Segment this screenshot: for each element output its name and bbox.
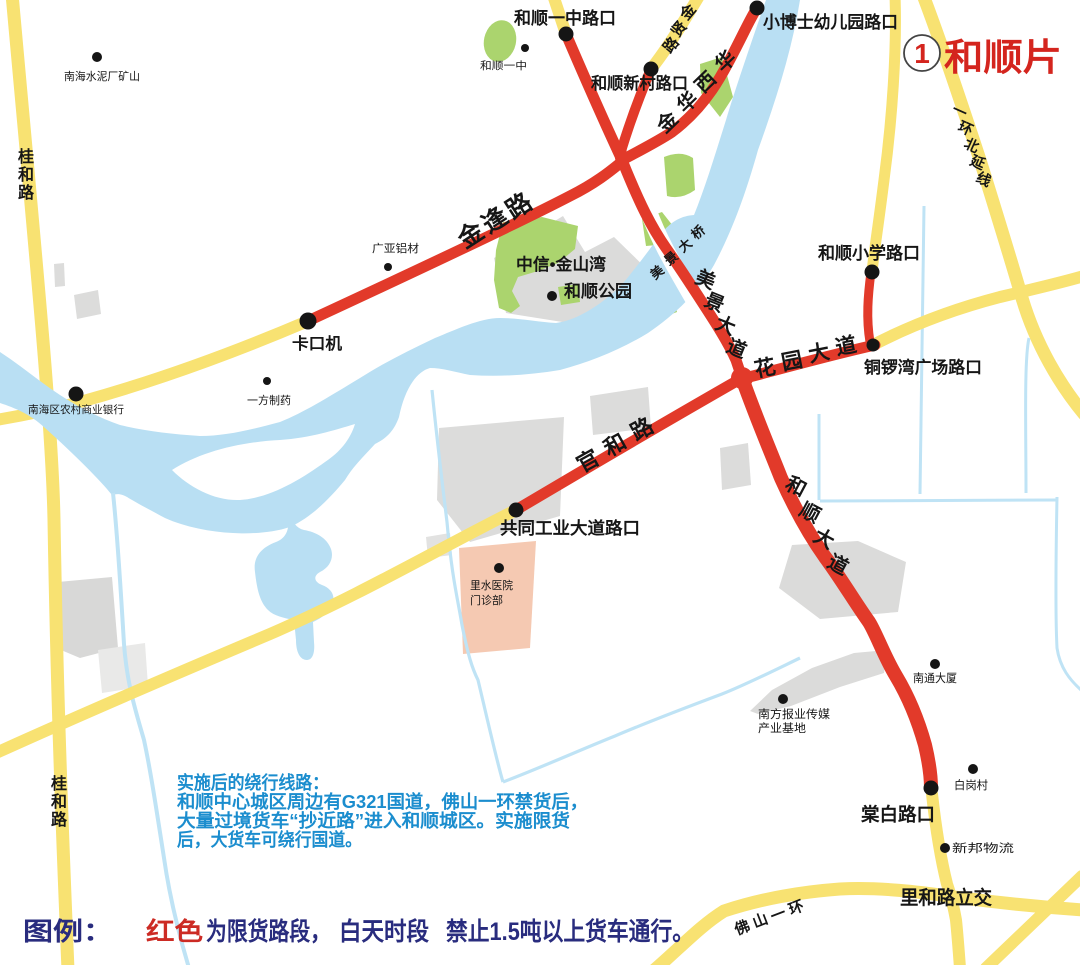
svg-text:小博士幼儿园路口: 小博士幼儿园路口	[763, 12, 898, 32]
svg-text:和顺中心城区周边有G321国道，佛山一环禁货后，: 和顺中心城区周边有G321国道，佛山一环禁货后，	[177, 791, 588, 812]
svg-text:花: 花	[752, 354, 777, 382]
svg-text:铜锣湾广场路口: 铜锣湾广场路口	[864, 357, 982, 377]
svg-text:后，大货车可绕行国道。: 后，大货车可绕行国道。	[177, 829, 362, 850]
svg-text:大: 大	[807, 340, 832, 367]
svg-text:和顺一中路口: 和顺一中路口	[514, 8, 616, 28]
svg-text:桂: 桂	[17, 147, 34, 166]
svg-text:南海水泥厂矿山: 南海水泥厂矿山	[64, 69, 140, 83]
svg-text:产业基地: 产业基地	[758, 721, 807, 735]
svg-text:广亚铝材: 广亚铝材	[372, 241, 419, 255]
svg-text:和顺一中: 和顺一中	[480, 59, 527, 72]
svg-text:共同工业大道路口: 共同工业大道路口	[500, 518, 640, 538]
svg-text:白天时段: 白天时段	[339, 917, 429, 946]
svg-text:园: 园	[780, 348, 805, 375]
svg-text:和顺小学路口: 和顺小学路口	[818, 243, 920, 263]
svg-text:道: 道	[833, 332, 858, 360]
svg-text:棠白路口: 棠白路口	[860, 804, 935, 825]
svg-text:禁止1.5吨以上货车通行。: 禁止1.5吨以上货车通行。	[446, 917, 694, 946]
svg-text:和: 和	[51, 792, 67, 811]
svg-text:和顺公园: 和顺公园	[564, 282, 632, 301]
svg-text:卡口机: 卡口机	[292, 334, 342, 353]
svg-text:一方制药: 一方制药	[247, 393, 291, 407]
svg-text:新邦物流: 新邦物流	[952, 841, 1015, 855]
svg-text:图例：: 图例：	[23, 918, 113, 946]
svg-text:和顺新村路口: 和顺新村路口	[591, 73, 688, 93]
svg-text:红色: 红色	[146, 917, 203, 946]
svg-text:南方报业传媒: 南方报业传媒	[758, 707, 831, 721]
svg-text:南通大厦: 南通大厦	[913, 671, 957, 685]
svg-text:中信•金山湾: 中信•金山湾	[516, 254, 607, 274]
svg-text:里水医院: 里水医院	[470, 578, 513, 592]
svg-text:大量过境货车“抄近路”进入和顺城区。实施限货: 大量过境货车“抄近路”进入和顺城区。实施限货	[177, 810, 570, 831]
svg-text:路: 路	[18, 183, 35, 202]
svg-text:为限货路段，: 为限货路段，	[206, 917, 331, 946]
svg-text:桂: 桂	[50, 774, 67, 793]
svg-text:和顺片: 和顺片	[944, 37, 1062, 78]
svg-text:南海区农村商业银行: 南海区农村商业银行	[28, 403, 125, 416]
svg-text:和: 和	[18, 165, 34, 184]
svg-text:白岗村: 白岗村	[954, 778, 988, 792]
svg-text:路: 路	[51, 810, 68, 829]
svg-text:门诊部: 门诊部	[470, 593, 503, 607]
svg-text:实施后的绕行线路：: 实施后的绕行线路：	[177, 772, 329, 793]
svg-text:1: 1	[914, 38, 930, 69]
svg-text:里和路立交: 里和路立交	[900, 886, 992, 909]
